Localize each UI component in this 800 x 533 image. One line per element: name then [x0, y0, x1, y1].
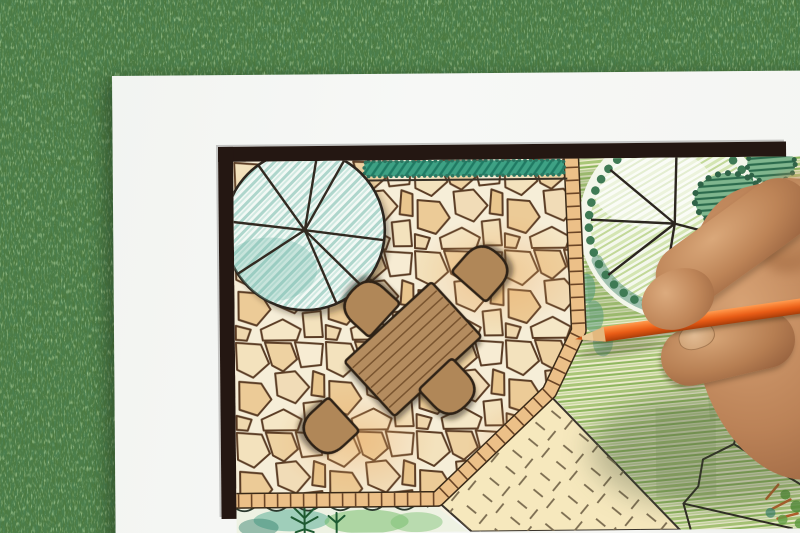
- photo-scene: [0, 0, 800, 533]
